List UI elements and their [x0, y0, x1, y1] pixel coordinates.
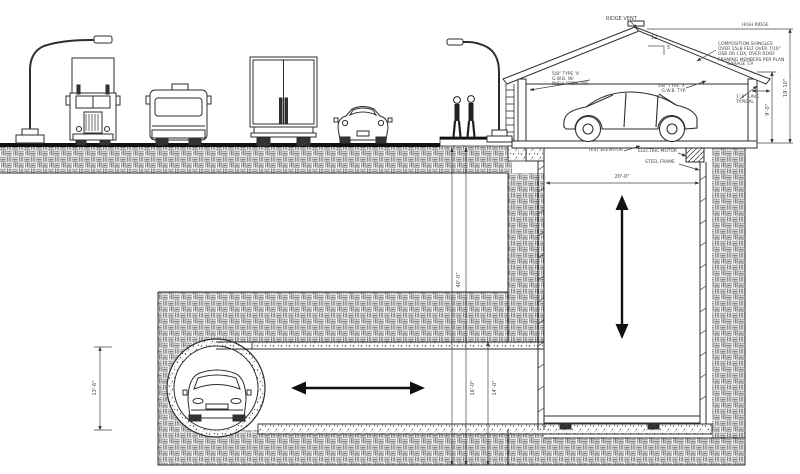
depth-outer-dim: 14'-0": [492, 380, 498, 395]
earth-hatch: [0, 146, 745, 465]
plate-height-dim: 9'-0": [765, 104, 771, 116]
box-truck: [250, 57, 317, 146]
sedan: [334, 107, 392, 144]
ridge-height-dim: 19'-10": [783, 79, 789, 97]
insulation-note: 5/8" TYPE 'X' G.W.B. W/ INSULATION TYP.: [552, 72, 589, 88]
electric-motor-label: ELECTRIC MOTOR: [638, 149, 677, 154]
eave-note: 1'-0" EAVE TYPICAL: [736, 95, 759, 105]
electric-motor-unit: [686, 148, 704, 162]
depth-inner-dim: 16'-0": [470, 380, 476, 395]
total-depth-dim: 40'-0": [456, 272, 462, 287]
shaft-width-dim: 20'-0": [614, 174, 629, 180]
gwb-note: 5/8" TYPE 'X' G.W.B. TYP.: [656, 84, 686, 94]
bus: [146, 84, 211, 145]
steel-frame-label: STEEL FRAME: [645, 160, 675, 165]
semi-truck: [66, 58, 120, 145]
test-elevator-label: TEST ELEVATOR: [588, 148, 623, 153]
roof-note: COMPOSITION SHINGLES OVER 15LB FELT OVER…: [718, 42, 798, 63]
pitch-run-label: 12: [651, 36, 657, 42]
section-drawing: RIDGE VENT HIGH RIDGE COMPOSITION SHINGL…: [0, 0, 800, 474]
garage-car: [564, 92, 697, 142]
pedestrians: [454, 96, 475, 137]
pitch-rise-label: 5: [667, 46, 670, 52]
tunnel-diameter-dim: 13'-6": [92, 380, 98, 395]
elevator-shaft: [526, 146, 706, 430]
ridge-vent-label: RIDGE VENT: [606, 17, 637, 23]
high-ridge-label: HIGH RIDGE: [742, 23, 769, 28]
drawing-linework: [0, 0, 800, 474]
street-lamp-right: [447, 39, 512, 142]
elevator-travel-arrow: [616, 195, 629, 339]
tunnel-car: [183, 370, 251, 421]
garage-tp-label: GARAGE T.P.: [727, 62, 754, 67]
